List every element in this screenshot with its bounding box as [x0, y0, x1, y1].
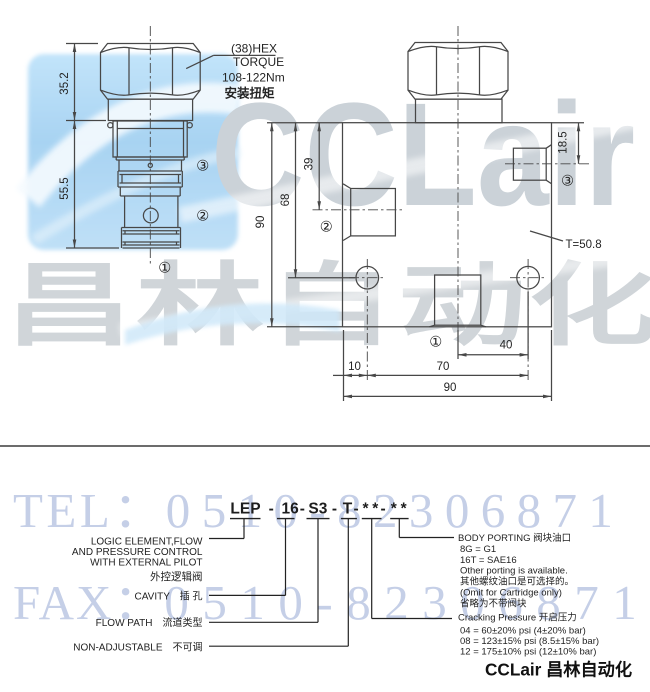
- svg-text:Cracking Pressure 开启压力: Cracking Pressure 开启压力: [458, 612, 577, 624]
- svg-text:12 = 175±10% psi (12±10% bar): 12 = 175±10% psi (12±10% bar): [460, 647, 596, 658]
- svg-text:②: ②: [320, 220, 333, 236]
- svg-text:②: ②: [196, 209, 209, 225]
- svg-text:40: 40: [500, 340, 513, 352]
- svg-text:10: 10: [348, 361, 361, 373]
- svg-text:90: 90: [255, 216, 267, 229]
- svg-text:LOGIC ELEMENT,FLOW: LOGIC ELEMENT,FLOW: [91, 537, 203, 548]
- svg-text:③: ③: [196, 159, 209, 175]
- svg-text:90: 90: [444, 382, 457, 394]
- svg-text:(38)HEX: (38)HEX: [231, 42, 277, 56]
- svg-text:TORQUE: TORQUE: [233, 55, 284, 69]
- svg-text:安装扭矩: 安装扭矩: [225, 86, 276, 101]
- svg-text:55.5: 55.5: [59, 177, 71, 199]
- svg-text:08 = 123±15% psi (8.5±15% bar): 08 = 123±15% psi (8.5±15% bar): [460, 636, 599, 647]
- svg-text:70: 70: [437, 361, 450, 373]
- svg-text:WITH EXTERNAL PILOT: WITH EXTERNAL PILOT: [90, 558, 202, 569]
- svg-text:Other porting is available.: Other porting is available.: [460, 566, 568, 577]
- svg-text:FLOW PATH 流道类型: FLOW PATH 流道类型: [96, 616, 203, 629]
- svg-text:CCLair 昌林自动化: CCLair 昌林自动化: [485, 660, 632, 680]
- svg-text:108-122Nm: 108-122Nm: [222, 71, 285, 85]
- svg-text:16T = SAE16: 16T = SAE16: [460, 555, 517, 566]
- svg-text:18.5: 18.5: [558, 131, 570, 153]
- svg-text:CAVITY 插 孔: CAVITY 插 孔: [135, 590, 203, 603]
- svg-text:AND PRESSURE CONTROL: AND PRESSURE CONTROL: [72, 547, 203, 558]
- svg-text:NON-ADJUSTABLE 不可调: NON-ADJUSTABLE 不可调: [73, 642, 202, 654]
- svg-text:LEP-16-S3-T-**-**: LEP-16-S3-T-**-**: [230, 501, 407, 518]
- svg-text:(Omit for Cartridge only): (Omit for Cartridge only): [460, 588, 562, 599]
- svg-text:其他螺纹油口是可选择的。: 其他螺纹油口是可选择的。: [460, 576, 574, 588]
- svg-text:CCLair: CCLair: [211, 73, 635, 236]
- svg-text:8G = G1: 8G = G1: [460, 544, 496, 555]
- svg-text:①: ①: [158, 261, 171, 277]
- svg-text:③: ③: [561, 174, 574, 190]
- svg-text:68: 68: [280, 194, 292, 207]
- svg-text:外控逻辑阀: 外控逻辑阀: [150, 570, 203, 583]
- svg-text:省略为不带阀块: 省略为不带阀块: [460, 598, 527, 610]
- svg-text:35.2: 35.2: [59, 72, 71, 94]
- svg-text:39: 39: [304, 158, 316, 171]
- svg-text:04 = 60±20% psi (4±20% bar): 04 = 60±20% psi (4±20% bar): [460, 626, 586, 637]
- svg-text:BODY PORTING 阀块油口: BODY PORTING 阀块油口: [458, 532, 571, 544]
- svg-text:①: ①: [429, 334, 442, 350]
- svg-text:T=50.8: T=50.8: [566, 239, 602, 251]
